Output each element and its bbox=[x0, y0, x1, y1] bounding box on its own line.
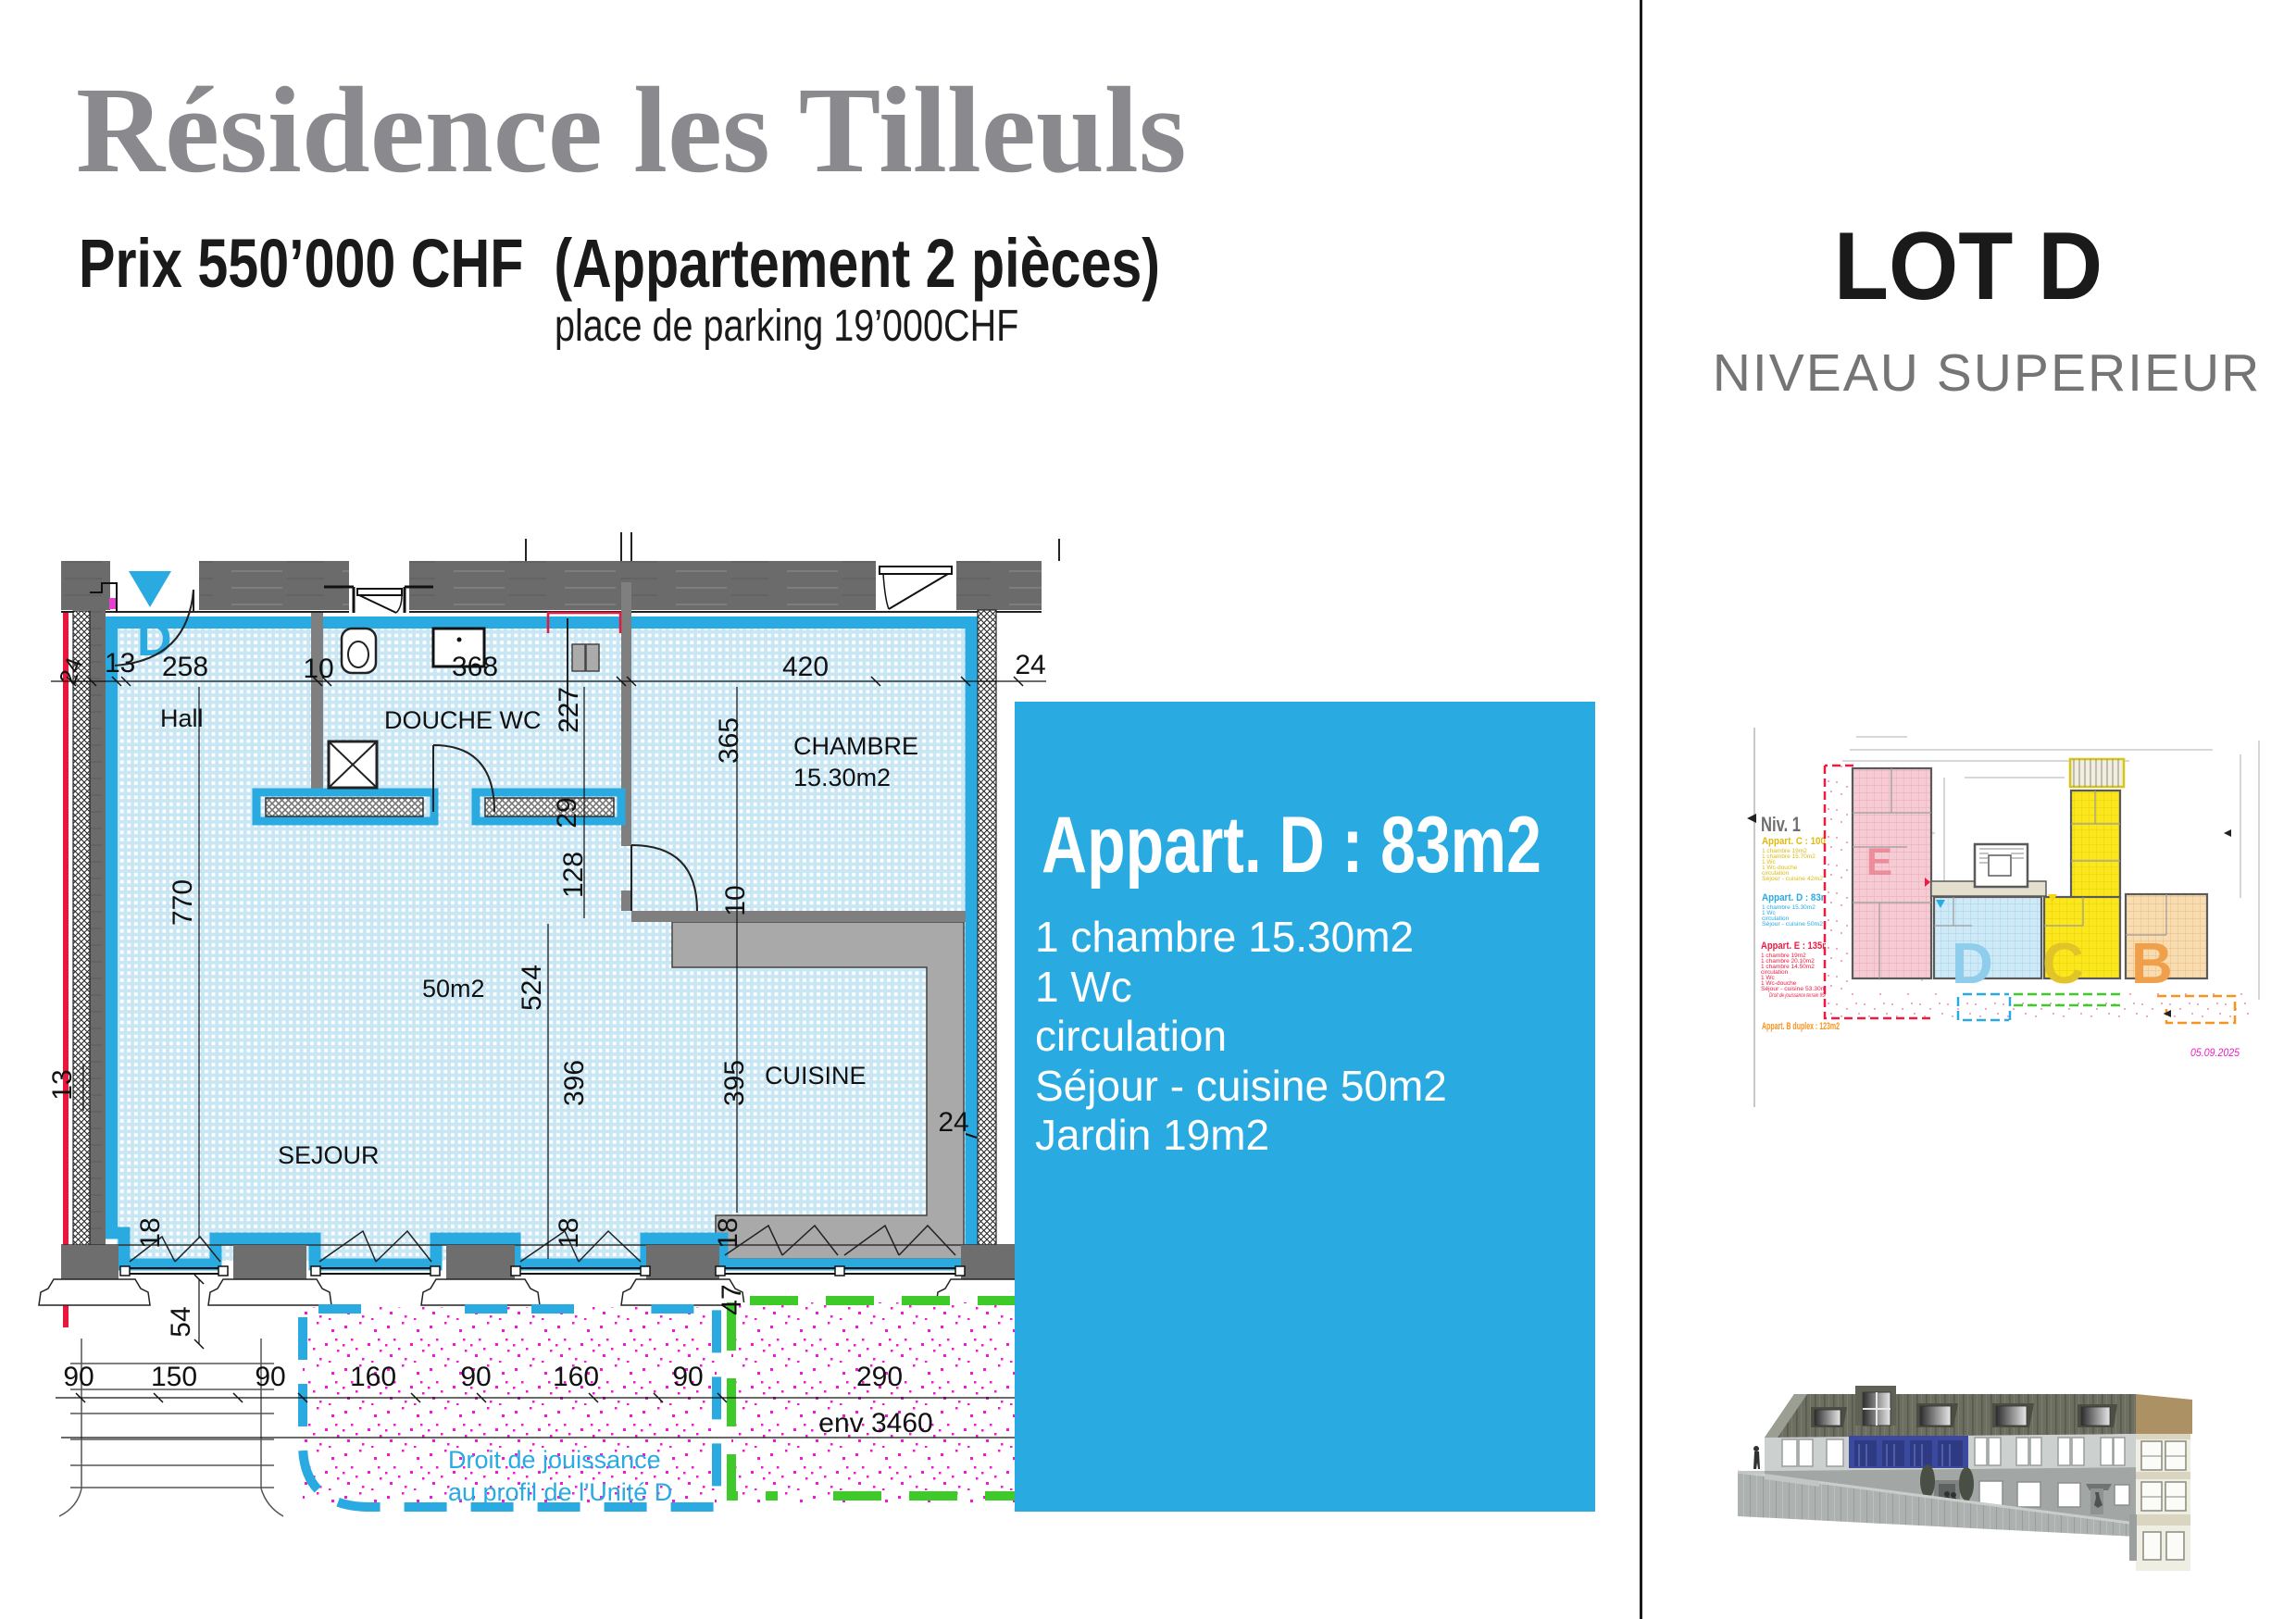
svg-text:Niv. 1: Niv. 1 bbox=[1761, 813, 1801, 836]
svg-text:B: B bbox=[2131, 932, 2173, 996]
svg-text:Séjour - cuisine 53.30m2: Séjour - cuisine 53.30m2 bbox=[1761, 986, 1829, 992]
svg-text:CUISINE: CUISINE bbox=[765, 1062, 867, 1090]
svg-text:90: 90 bbox=[460, 1362, 491, 1392]
svg-text:05.09.2025: 05.09.2025 bbox=[2190, 1048, 2240, 1059]
svg-text:227: 227 bbox=[554, 687, 584, 733]
svg-text:Hall: Hall bbox=[160, 704, 204, 732]
svg-text:18: 18 bbox=[713, 1217, 743, 1248]
svg-text:Droit de jouissance: Droit de jouissance bbox=[448, 1446, 661, 1474]
svg-text:47: 47 bbox=[717, 1284, 747, 1314]
svg-text:13: 13 bbox=[105, 648, 135, 679]
svg-text:SEJOUR: SEJOUR bbox=[278, 1141, 380, 1169]
svg-text:128: 128 bbox=[558, 852, 589, 898]
svg-text:Appart. B duplex : 123m2: Appart. B duplex : 123m2 bbox=[1762, 1021, 1840, 1032]
svg-text:770: 770 bbox=[168, 879, 198, 926]
svg-text:au profil de l'Unité D: au profil de l'Unité D bbox=[448, 1478, 672, 1506]
svg-text:DOUCHE WC: DOUCHE WC bbox=[384, 706, 542, 734]
svg-text:396: 396 bbox=[559, 1060, 590, 1106]
svg-text:18: 18 bbox=[554, 1217, 584, 1248]
svg-text:CHAMBRE: CHAMBRE bbox=[793, 732, 918, 760]
svg-text:50m2: 50m2 bbox=[422, 975, 485, 1003]
svg-text:10: 10 bbox=[720, 885, 751, 915]
svg-text:160: 160 bbox=[553, 1362, 599, 1392]
svg-text:258: 258 bbox=[162, 652, 208, 682]
svg-text:368: 368 bbox=[452, 652, 498, 682]
svg-text:E: E bbox=[1866, 840, 1892, 883]
svg-text:90: 90 bbox=[255, 1362, 285, 1392]
svg-text:Séjour - cuisine 50m2: Séjour - cuisine 50m2 bbox=[1762, 921, 1823, 928]
svg-text:29: 29 bbox=[552, 797, 582, 828]
svg-text:90: 90 bbox=[672, 1362, 703, 1392]
svg-text:395: 395 bbox=[719, 1060, 750, 1106]
svg-text:env 3460: env 3460 bbox=[818, 1408, 932, 1438]
svg-text:18: 18 bbox=[135, 1217, 166, 1248]
svg-text:90: 90 bbox=[63, 1362, 94, 1392]
svg-text:Droit de jouissance terrain 95: Droit de jouissance terrain 95m2 bbox=[1769, 992, 1830, 999]
svg-text:524: 524 bbox=[517, 965, 547, 1011]
svg-text:D: D bbox=[1952, 932, 1993, 996]
svg-text:24: 24 bbox=[938, 1107, 968, 1138]
svg-text:420: 420 bbox=[782, 652, 829, 682]
svg-text:13: 13 bbox=[47, 1069, 78, 1100]
svg-text:54: 54 bbox=[166, 1306, 196, 1337]
svg-text:24: 24 bbox=[1015, 650, 1045, 680]
svg-text:10: 10 bbox=[303, 654, 333, 684]
svg-text:150: 150 bbox=[151, 1362, 197, 1392]
svg-text:290: 290 bbox=[856, 1362, 903, 1392]
svg-text:15.30m2: 15.30m2 bbox=[793, 764, 891, 791]
svg-text:Appart. D : 83m2: Appart. D : 83m2 bbox=[1762, 892, 1834, 903]
svg-text:365: 365 bbox=[714, 717, 744, 764]
svg-text:Séjour - cuisine 42m2: Séjour - cuisine 42m2 bbox=[1762, 876, 1823, 882]
svg-text:C: C bbox=[2042, 932, 2084, 996]
svg-text:160: 160 bbox=[350, 1362, 396, 1392]
